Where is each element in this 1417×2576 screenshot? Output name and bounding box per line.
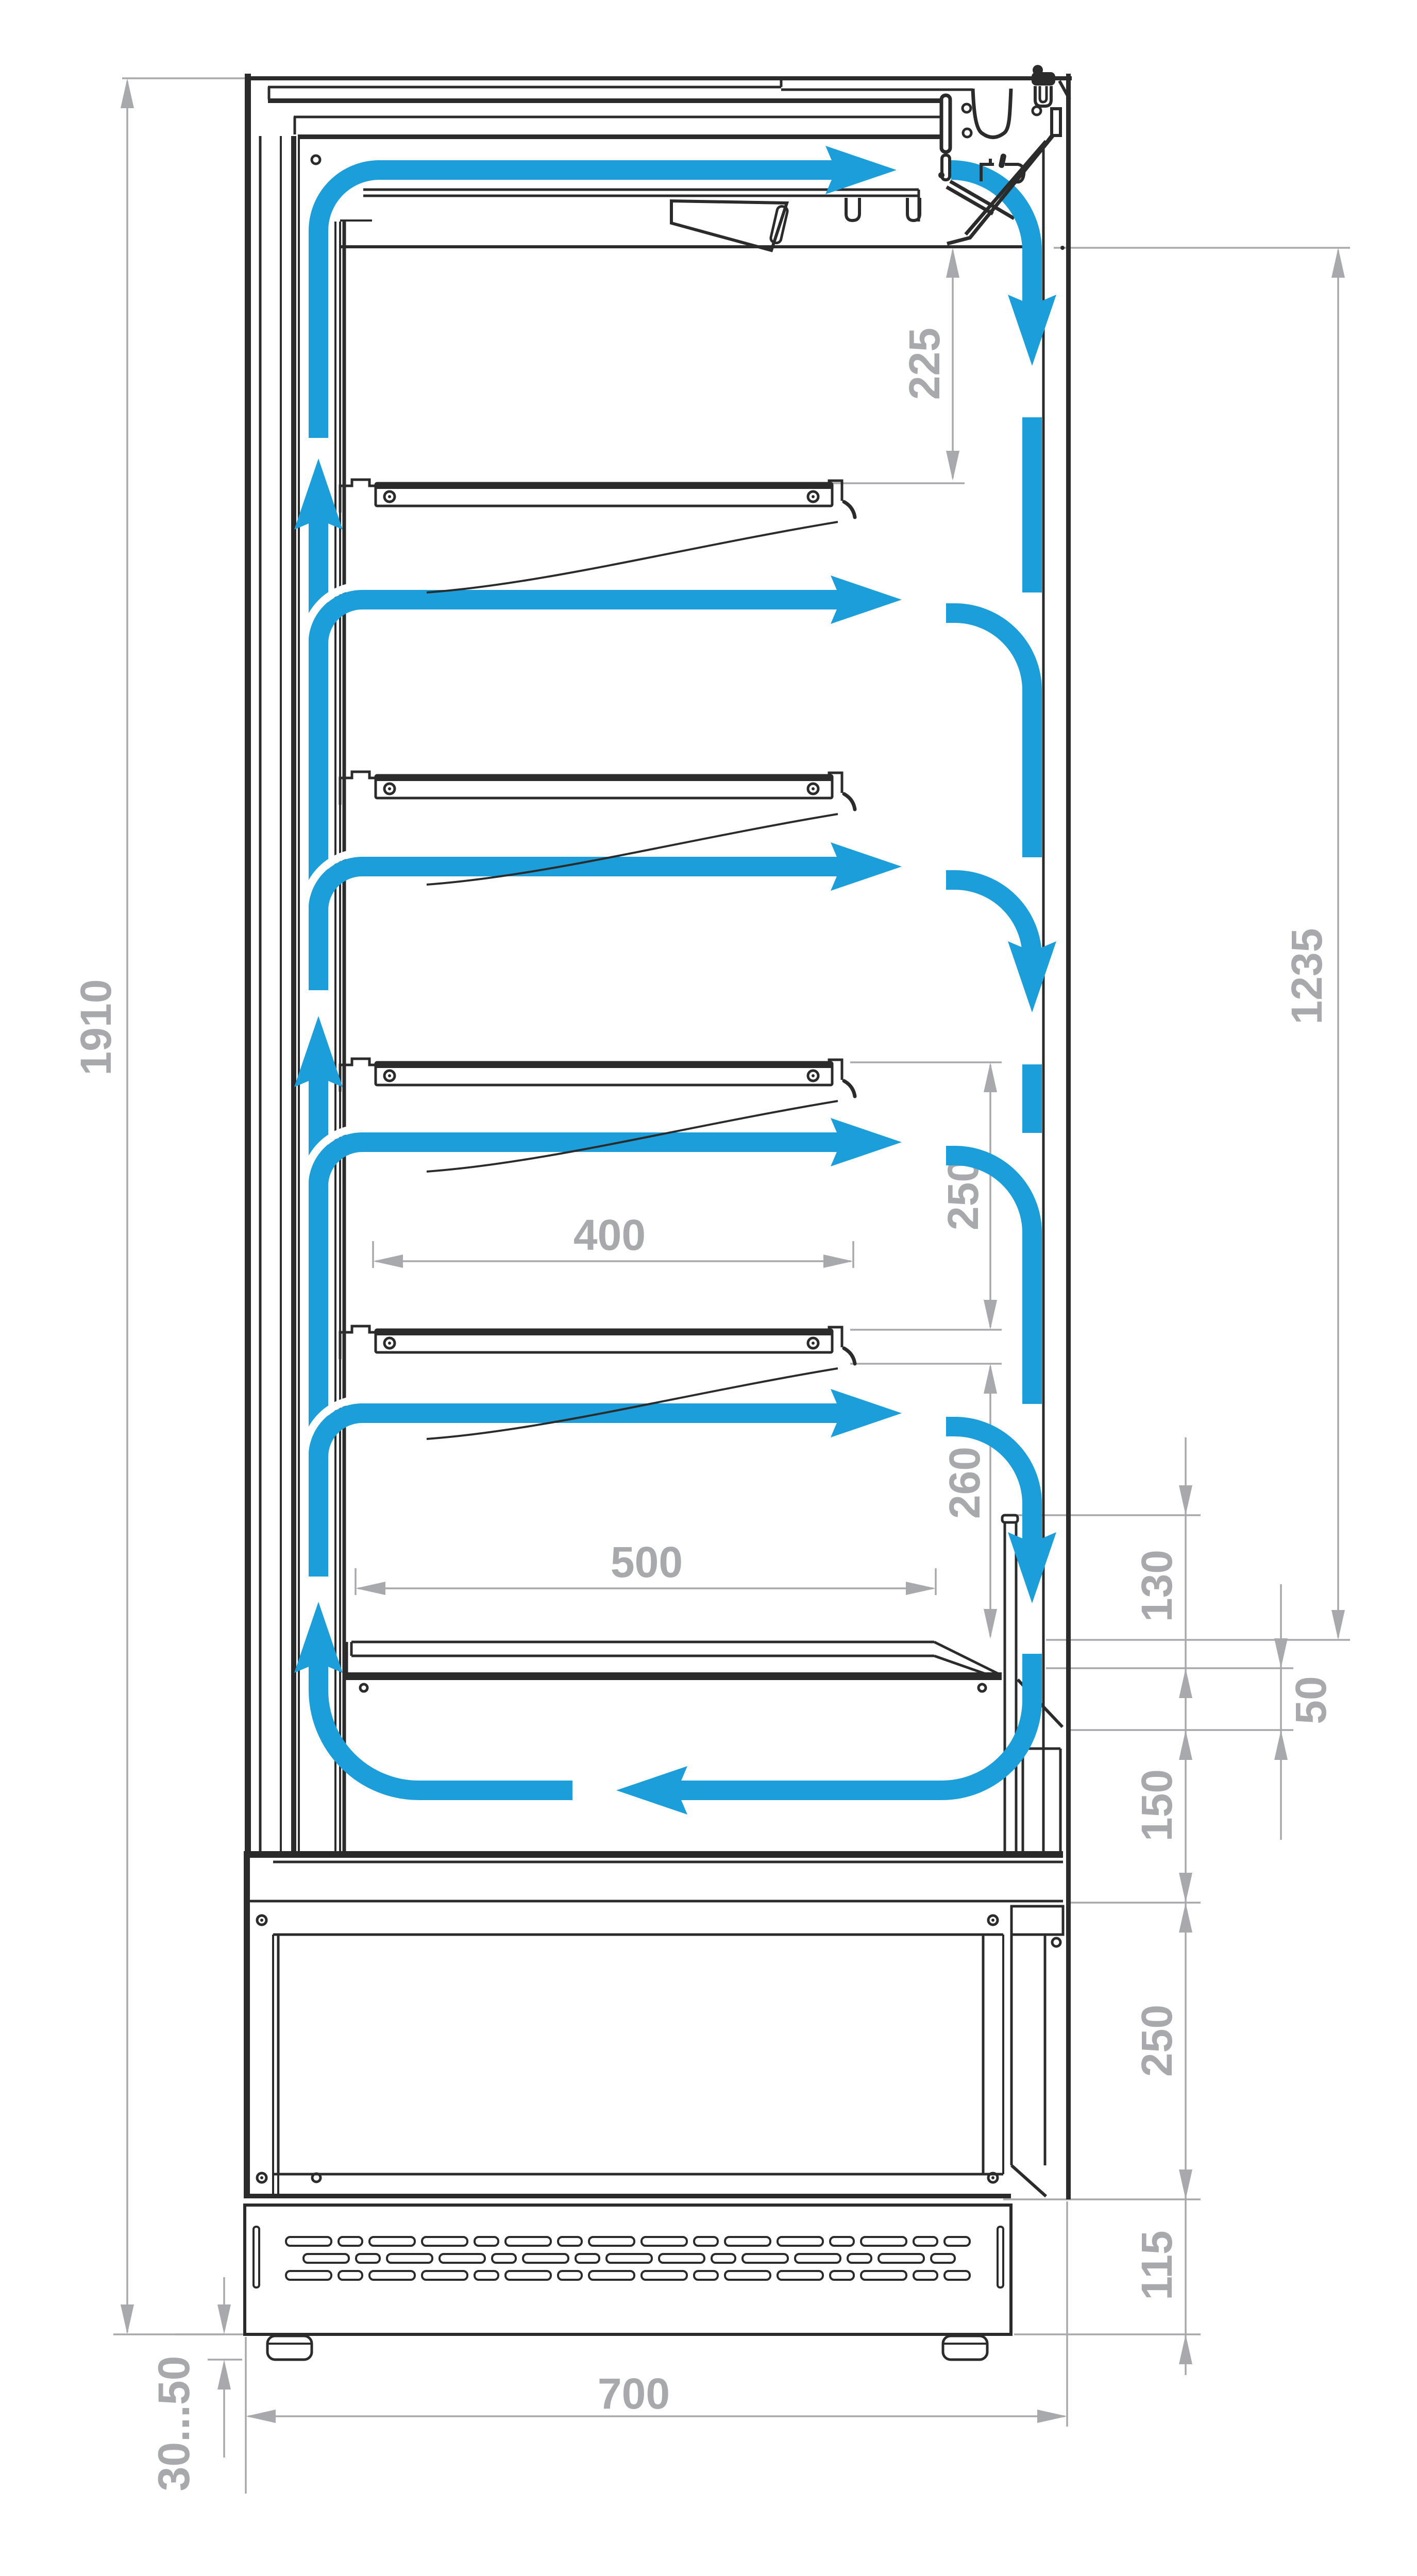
svg-text:1910: 1910 [72,979,120,1076]
svg-text:250: 250 [1133,2005,1181,2077]
svg-text:115: 115 [1133,2230,1181,2300]
svg-text:50: 50 [1287,1676,1335,1724]
svg-text:30...50: 30...50 [149,2356,199,2492]
svg-text:500: 500 [611,1538,683,1586]
svg-text:400: 400 [573,1211,646,1259]
svg-text:700: 700 [598,2369,670,2418]
svg-text:260: 260 [940,1447,989,1519]
svg-text:225: 225 [900,328,949,400]
svg-text:150: 150 [1133,1769,1181,1841]
svg-text:130: 130 [1133,1550,1181,1622]
svg-text:1235: 1235 [1283,928,1331,1025]
